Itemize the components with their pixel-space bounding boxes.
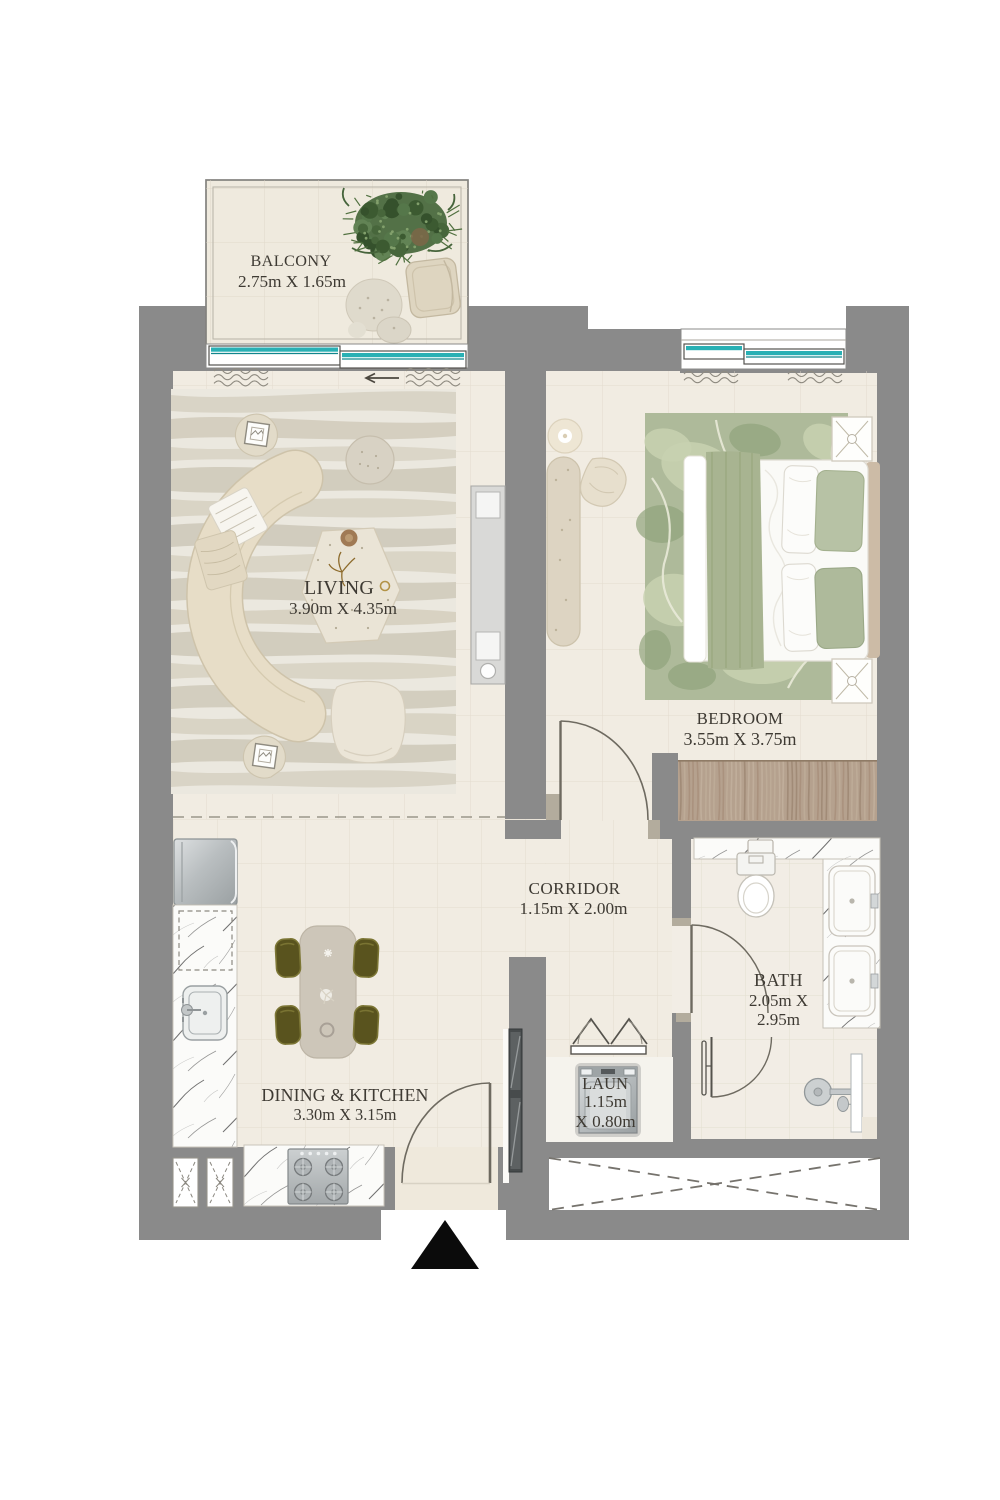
svg-text:3.90m X 4.35m: 3.90m X 4.35m <box>289 599 398 618</box>
svg-text:BATH: BATH <box>754 970 803 990</box>
svg-text:2.05m X: 2.05m X <box>749 991 808 1010</box>
svg-text:1.15m: 1.15m <box>584 1092 627 1111</box>
svg-text:3.55m X 3.75m: 3.55m X 3.75m <box>683 729 796 749</box>
svg-text:BEDROOM: BEDROOM <box>697 709 784 728</box>
svg-text:LAUN: LAUN <box>582 1074 628 1093</box>
svg-text:DINING & KITCHEN: DINING & KITCHEN <box>261 1085 428 1105</box>
svg-text:1.15m X 2.00m: 1.15m X 2.00m <box>520 899 629 918</box>
svg-text:2.95m: 2.95m <box>757 1010 800 1029</box>
svg-text:CORRIDOR: CORRIDOR <box>528 879 620 898</box>
svg-text:2.75m X 1.65m: 2.75m X 1.65m <box>238 272 347 291</box>
svg-text:LIVING: LIVING <box>304 577 374 599</box>
svg-text:X 0.80m: X 0.80m <box>575 1112 636 1131</box>
svg-text:BALCONY: BALCONY <box>250 252 331 270</box>
svg-text:3.30m X 3.15m: 3.30m X 3.15m <box>294 1105 397 1124</box>
